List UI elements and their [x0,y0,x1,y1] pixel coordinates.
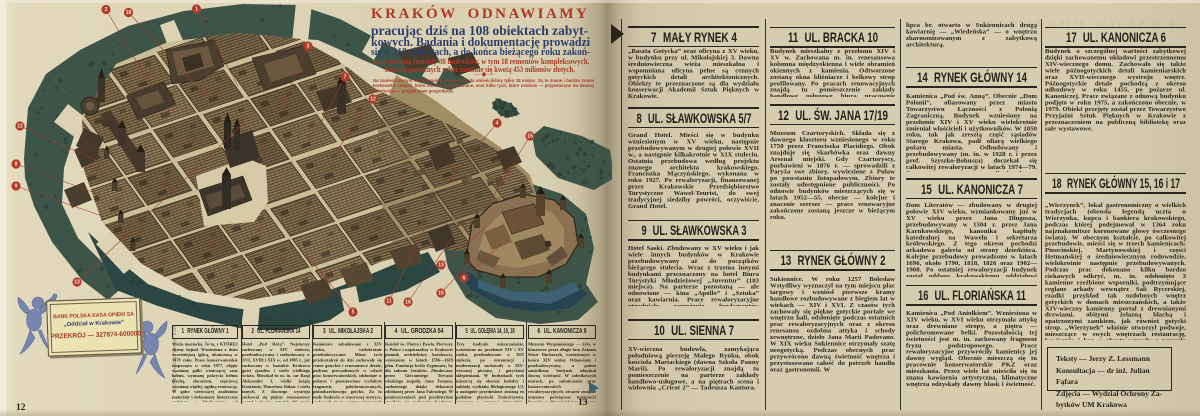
svg-text:12: 12 [17,124,23,130]
svg-text:15: 15 [527,134,533,140]
svg-text:5: 5 [352,310,355,316]
svg-text:2: 2 [105,7,108,13]
svg-text:18: 18 [126,10,132,16]
svg-text:4: 4 [496,121,499,127]
svg-text:6: 6 [463,276,466,282]
svg-text:7: 7 [344,75,347,81]
svg-text:13: 13 [74,280,80,286]
svg-text:13: 13 [438,263,444,269]
svg-text:18: 18 [405,300,411,306]
svg-text:15: 15 [438,291,444,297]
svg-text:3: 3 [307,44,310,50]
svg-text:11: 11 [386,299,392,305]
svg-text:1: 1 [195,7,198,13]
svg-text:9: 9 [15,184,18,190]
svg-text:8: 8 [15,162,18,168]
svg-text:12: 12 [370,97,376,103]
